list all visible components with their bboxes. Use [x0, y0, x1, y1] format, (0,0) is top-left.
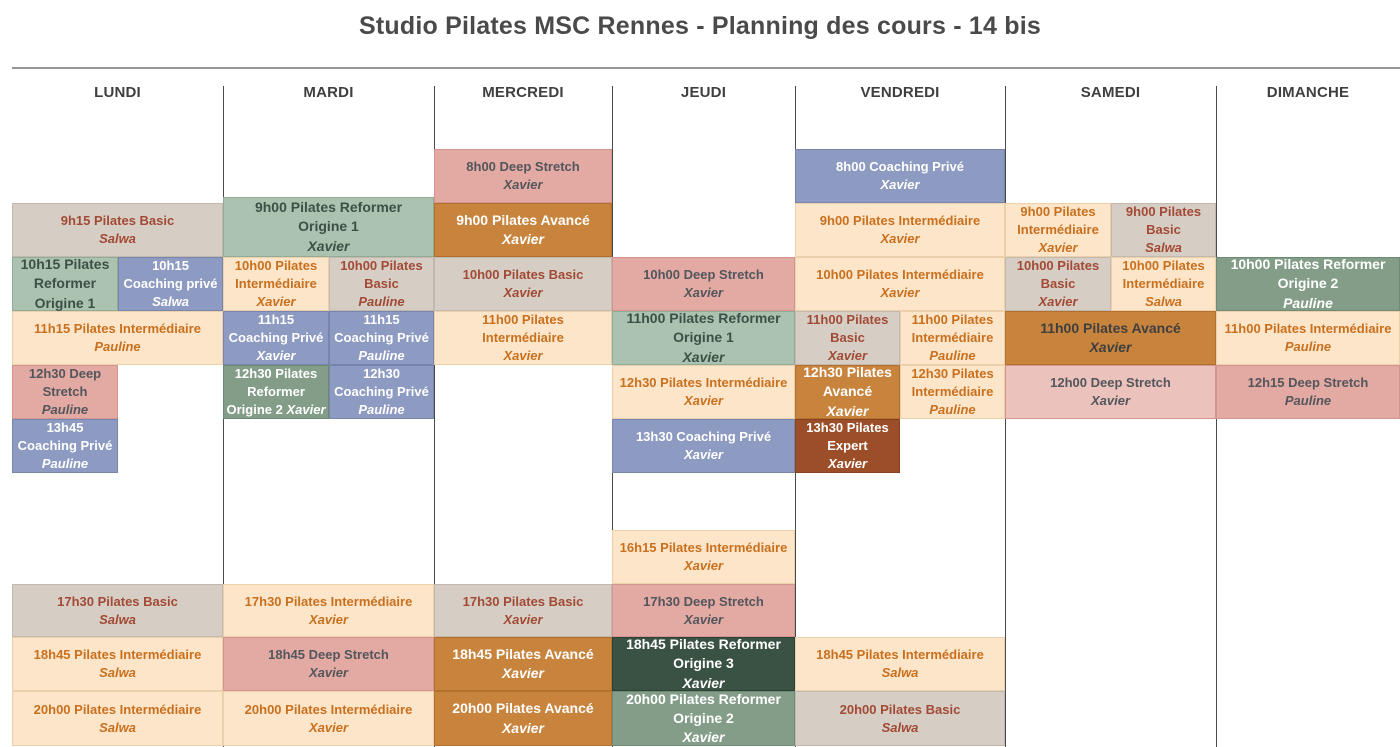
event-title-line: Stretch — [43, 383, 88, 401]
event-instructor: Salwa — [99, 665, 136, 680]
event-block: 10h00 Pilates IntermédiaireXavier — [795, 257, 1005, 311]
event-instructor-line: Xavier — [880, 284, 919, 302]
event-instructor-line: Xavier — [309, 664, 348, 682]
event-instructor-line: Pauline — [94, 338, 140, 356]
event-instructor: Xavier — [682, 675, 724, 691]
event-instructor: Xavier — [880, 285, 919, 300]
event-title-line: 9h15 Pilates Basic — [61, 212, 174, 230]
day-header-mardi: MARDI — [223, 84, 434, 104]
event-instructor-line: Xavier — [503, 284, 542, 302]
event-title-line: 10h00 Pilates Reformer — [1231, 255, 1386, 274]
event-instructor-line: Xavier — [256, 347, 295, 365]
event-block: 11h00 PilatesBasicXavier — [795, 311, 900, 365]
event-instructor-line: Xavier — [1038, 239, 1077, 257]
event-block: 18h45 Pilates ReformerOrigine 3Xavier — [612, 637, 795, 691]
event-block: 9h00 Pilates ReformerOrigine 1Xavier — [223, 197, 434, 257]
event-title-line: 11h00 Pilates Reformer — [626, 309, 780, 328]
event-instructor: Xavier — [684, 447, 723, 462]
event-title-line: Origine 1 — [673, 328, 734, 347]
event-title-line: 9h00 Pilates Avancé — [456, 211, 590, 230]
event-title-line: 17h30 Pilates Intermédiaire — [245, 593, 413, 611]
event-title-line: 13h30 Pilates — [806, 419, 888, 437]
event-instructor-line: Pauline — [929, 401, 975, 419]
event-block: 11h15 Pilates IntermédiairePauline — [12, 311, 223, 365]
event-block: 10h15Coaching privéSalwa — [118, 257, 223, 311]
event-title-line: 11h00 Pilates — [807, 311, 889, 329]
event-block: 20h00 Pilates IntermédiaireSalwa — [12, 691, 223, 746]
event-title-line: Origine 2 — [1278, 274, 1339, 293]
event-block: 12h00 Deep StretchXavier — [1005, 365, 1216, 419]
event-block: 18h45 Pilates IntermédiaireSalwa — [795, 637, 1005, 691]
event-title-line: 18h45 Deep Stretch — [268, 646, 389, 664]
event-instructor: Xavier — [880, 177, 919, 192]
event-title-line: 12h30 Pilates — [803, 363, 892, 382]
event-instructor-line: Xavier — [502, 719, 544, 738]
event-title-line: Coaching Privé — [334, 383, 429, 401]
event-block: 18h45 Pilates IntermédiaireSalwa — [12, 637, 223, 691]
event-block: 12h30 PilatesAvancéXavier — [795, 365, 900, 419]
event-title-line: 20h00 Pilates Avancé — [452, 699, 593, 718]
event-block: 13h45Coaching PrivéPauline — [12, 419, 118, 473]
event-instructor: Xavier — [309, 612, 348, 627]
event-block: 13h30 PilatesExpertXavier — [795, 419, 900, 473]
event-title-line: 18h45 Pilates Intermédiaire — [34, 646, 202, 664]
event-title-line: 9h00 Pilates — [1126, 203, 1201, 221]
event-title-line: 10h00 Pilates — [340, 257, 422, 275]
event-title-line: Intermédiaire — [912, 329, 994, 347]
event-instructor: Xavier — [309, 665, 348, 680]
event-title-line: 11h15 — [258, 311, 294, 329]
event-title-line: Origine 2 — [673, 709, 734, 728]
event-instructor: Pauline — [358, 402, 404, 417]
event-title-line: 8h00 Coaching Privé — [836, 158, 964, 176]
event-block: 9h00 Pilates IntermédiaireXavier — [795, 203, 1005, 257]
event-block: 17h30 Pilates BasicSalwa — [12, 584, 223, 637]
event-title-line: 20h00 Pilates Basic — [840, 701, 961, 719]
event-title-line: Coaching Privé — [229, 329, 324, 347]
event-instructor: Pauline — [358, 294, 404, 309]
event-instructor-line: Xavier — [309, 719, 348, 737]
event-title-line: Origine 1 — [298, 217, 359, 236]
event-instructor: Xavier — [503, 285, 542, 300]
event-instructor-line: Xavier — [309, 611, 348, 629]
event-instructor-line: Pauline — [1285, 392, 1331, 410]
event-title-line: 11h00 Pilates Intermédiaire — [1225, 320, 1392, 338]
event-instructor: Salwa — [882, 720, 919, 735]
event-block: 10h15 PilatesReformerOrigine 1 — [12, 257, 118, 311]
event-title-line: Intermédiaire — [235, 275, 317, 293]
event-block: 10h00 Pilates BasicXavier — [434, 257, 612, 311]
event-instructor: Xavier — [684, 393, 723, 408]
event-block: 10h00 PilatesBasicPauline — [329, 257, 434, 311]
event-instructor: Xavier — [503, 612, 542, 627]
event-title-line: 11h00 Pilates — [912, 311, 994, 329]
event-title-line: 16h15 Pilates Intermédiaire — [620, 539, 788, 557]
event-instructor: Pauline — [1285, 393, 1331, 408]
event-instructor: Pauline — [929, 402, 975, 417]
event-title-line: 9h00 Pilates Intermédiaire — [820, 212, 980, 230]
page-title: Studio Pilates MSC Rennes - Planning des… — [0, 12, 1400, 41]
event-instructor-line: Pauline — [358, 293, 404, 311]
event-instructor: Xavier — [256, 348, 295, 363]
event-instructor: Xavier — [684, 558, 723, 573]
event-instructor: Salwa — [882, 665, 919, 680]
event-block: 11h00 Pilates ReformerOrigine 1Xavier — [612, 311, 795, 365]
event-title-line: 20h00 Pilates Intermédiaire — [34, 701, 202, 719]
event-title-line: 17h30 Pilates Basic — [463, 593, 584, 611]
event-title-line: 13h30 Coaching Privé — [636, 428, 771, 446]
event-block: 10h00 Deep StretchXavier — [612, 257, 795, 311]
event-instructor-line: Xavier — [684, 557, 723, 575]
event-block: 12h30 PilatesIntermédiairePauline — [900, 365, 1005, 419]
event-block: 10h00 PilatesIntermédiaireXavier — [223, 257, 329, 311]
event-block: 20h00 Pilates AvancéXavier — [434, 691, 612, 746]
event-block: 8h00 Coaching PrivéXavier — [795, 149, 1005, 203]
event-instructor-line: Xavier — [503, 176, 542, 194]
event-instructor-line: Xavier — [503, 611, 542, 629]
event-block: 11h15Coaching PrivéXavier — [223, 311, 329, 365]
event-title-line: 10h15 — [152, 257, 189, 275]
event-title-line: 17h30 Pilates Basic — [57, 593, 178, 611]
event-instructor: Xavier — [503, 177, 542, 192]
event-instructor-line: Salwa — [99, 611, 136, 629]
event-block: 11h00 Pilates IntermédiairePauline — [1216, 311, 1400, 365]
event-block: 9h15 Pilates BasicSalwa — [12, 203, 223, 257]
event-block: 20h00 Pilates BasicSalwa — [795, 691, 1005, 746]
event-instructor: Xavier — [684, 612, 723, 627]
event-block: 12h15 Deep StretchPauline — [1216, 365, 1400, 419]
event-block: 17h30 Deep StretchXavier — [612, 584, 795, 637]
event-title-line: 10h00 Pilates — [1122, 257, 1204, 275]
event-instructor: Xavier — [682, 729, 724, 745]
event-instructor-line: Pauline — [42, 401, 88, 419]
event-instructor: Xavier — [828, 456, 867, 471]
event-title-line: 12h30 Pilates — [911, 365, 993, 383]
event-title-line: Intermédiaire — [1123, 275, 1205, 293]
day-header-lundi: LUNDI — [12, 84, 223, 104]
event-instructor: Xavier — [682, 349, 724, 365]
event-title-line: 10h15 Pilates — [21, 255, 110, 274]
event-instructor: Pauline — [42, 456, 88, 471]
event-instructor: Xavier — [309, 720, 348, 735]
event-block: 12h30Coaching PrivéPauline — [329, 365, 434, 419]
event-instructor-line: Salwa — [882, 719, 919, 737]
event-title-line: 13h45 — [47, 419, 84, 437]
event-instructor-line: Pauline — [358, 347, 404, 365]
event-instructor: Xavier — [502, 720, 544, 736]
event-title-line: 11h00 Pilates Avancé — [1040, 319, 1181, 338]
event-instructor-line: Xavier — [880, 230, 919, 248]
event-instructor-line: Xavier — [684, 611, 723, 629]
event-title-line: Basic — [830, 329, 865, 347]
event-title-line: 20h00 Pilates Intermédiaire — [245, 701, 413, 719]
day-header-jeudi: JEUDI — [612, 84, 795, 104]
event-title-line: 17h30 Deep Stretch — [643, 593, 764, 611]
event-instructor: Salwa — [99, 720, 136, 735]
event-title-line: Basic — [364, 275, 399, 293]
event-instructor-line: Pauline — [1285, 338, 1331, 356]
day-header-samedi: SAMEDI — [1005, 84, 1216, 104]
event-instructor-line: Xavier — [684, 284, 723, 302]
event-instructor-line: Xavier — [502, 230, 544, 249]
event-instructor: Xavier — [502, 231, 544, 247]
event-block: 11h15Coaching PrivéPauline — [329, 311, 434, 365]
event-block: 9h00 PilatesBasicSalwa — [1111, 203, 1216, 257]
event-instructor-line: Salwa — [1145, 239, 1182, 257]
event-instructor-line: Pauline — [42, 455, 88, 473]
event-block: 17h30 Pilates BasicXavier — [434, 584, 612, 637]
event-title-line: 11h00 Pilates — [482, 311, 564, 329]
event-block: 10h00 PilatesIntermédiaireSalwa — [1111, 257, 1216, 311]
event-title-line: 9h00 Pilates Reformer — [255, 198, 402, 217]
event-title-line: 10h00 Deep Stretch — [643, 266, 764, 284]
event-instructor: Pauline — [1285, 339, 1331, 354]
event-block: 8h00 Deep StretchXavier — [434, 149, 612, 203]
event-instructor: Xavier — [880, 231, 919, 246]
event-title-line: 18h45 Pilates Intermédiaire — [816, 646, 984, 664]
title-divider — [12, 67, 1400, 69]
event-instructor-line: Xavier — [1089, 338, 1131, 357]
event-block: 17h30 Pilates IntermédiaireXavier — [223, 584, 434, 637]
event-block: 16h15 Pilates IntermédiaireXavier — [612, 530, 795, 584]
event-title-line: Reformer — [34, 274, 96, 293]
event-instructor-line: Xavier — [256, 293, 295, 311]
event-instructor: Salwa — [99, 231, 136, 246]
event-instructor-line: Xavier — [1091, 392, 1130, 410]
event-title-line: Expert — [827, 437, 867, 455]
event-instructor: Pauline — [358, 348, 404, 363]
event-title-line: 12h30 Pilates Intermédiaire — [620, 374, 788, 392]
event-title-line: Intermédiaire — [912, 383, 994, 401]
event-block: 12h30 DeepStretchPauline — [12, 365, 118, 419]
event-block: 12h30 PilatesReformerOrigine 2 Xavier — [223, 365, 329, 419]
event-instructor: Xavier — [286, 402, 325, 417]
day-header-mercredi: MERCREDI — [434, 84, 612, 104]
event-title-line: 8h00 Deep Stretch — [466, 158, 579, 176]
event-title-line: 10h00 Pilates — [1017, 257, 1099, 275]
event-title-line: Basic — [1041, 275, 1076, 293]
event-instructor-line: Xavier — [828, 455, 867, 473]
event-title-line: 11h15 — [363, 311, 399, 329]
event-title-line: Coaching privé — [124, 275, 218, 293]
event-block: 12h30 Pilates IntermédiaireXavier — [612, 365, 795, 419]
event-instructor-line: Salwa — [882, 664, 919, 682]
event-title-line: 12h00 Deep Stretch — [1050, 374, 1171, 392]
event-title-line: 12h15 Deep Stretch — [1248, 374, 1369, 392]
event-block: 10h00 PilatesBasicXavier — [1005, 257, 1111, 311]
event-instructor-line: Salwa — [99, 719, 136, 737]
event-title-line: Avancé — [823, 382, 872, 401]
event-title-line: 10h00 Pilates — [235, 257, 317, 275]
event-title-line: Reformer — [247, 383, 305, 401]
event-block: 20h00 Pilates IntermédiaireXavier — [223, 691, 434, 746]
event-instructor-line: Xavier — [880, 176, 919, 194]
event-block: 11h00 PilatesIntermédiaireXavier — [434, 311, 612, 365]
event-instructor: Xavier — [826, 403, 868, 419]
event-title-line: 18h45 Pilates Avancé — [452, 645, 593, 664]
event-block: 18h45 Pilates AvancéXavier — [434, 637, 612, 691]
event-instructor-line: Pauline — [929, 347, 975, 365]
event-title-line: Origine 2 Xavier — [226, 401, 325, 419]
event-instructor-line: Xavier — [307, 237, 349, 256]
event-title-line: Coaching Privé — [334, 329, 429, 347]
event-instructor: Xavier — [1089, 339, 1131, 355]
event-instructor: Salwa — [1145, 294, 1182, 309]
event-instructor-line: Xavier — [684, 446, 723, 464]
event-block: 13h30 Coaching PrivéXavier — [612, 419, 795, 473]
event-instructor: Pauline — [1283, 295, 1333, 311]
event-instructor: Xavier — [307, 238, 349, 254]
event-instructor: Salwa — [99, 612, 136, 627]
event-title-line: Basic — [1146, 221, 1181, 239]
event-title-line: 12h30 — [363, 365, 400, 383]
event-instructor: Xavier — [684, 285, 723, 300]
event-block: 10h00 Pilates ReformerOrigine 2Pauline — [1216, 257, 1400, 311]
event-title-line: 12h30 Pilates — [235, 365, 317, 383]
event-instructor: Pauline — [94, 339, 140, 354]
event-instructor-line: Xavier — [503, 347, 542, 365]
event-title-line: Coaching Privé — [18, 437, 113, 455]
event-instructor-line: Salwa — [1145, 293, 1182, 311]
event-title-line: 20h00 Pilates Reformer — [626, 690, 781, 709]
event-block: 9h00 Pilates AvancéXavier — [434, 203, 612, 257]
planning-page: Studio Pilates MSC Rennes - Planning des… — [0, 0, 1400, 747]
day-header-vendredi: VENDREDI — [795, 84, 1005, 104]
day-header-dimanche: DIMANCHE — [1216, 84, 1400, 104]
event-title-line: 10h00 Pilates Intermédiaire — [816, 266, 984, 284]
event-block: 11h00 Pilates AvancéXavier — [1005, 311, 1216, 365]
event-instructor: Salwa — [1145, 240, 1182, 255]
event-title-line: 11h15 Pilates Intermédiaire — [34, 320, 201, 338]
event-instructor-line: Xavier — [502, 664, 544, 683]
event-title-line: Intermédiaire — [1017, 221, 1099, 239]
event-instructor-line: Salwa — [99, 230, 136, 248]
event-instructor-line: Xavier — [1038, 293, 1077, 311]
event-instructor-line: Xavier — [684, 392, 723, 410]
event-instructor: Xavier — [256, 294, 295, 309]
event-instructor: Xavier — [1038, 294, 1077, 309]
event-title-line: Intermédiaire — [482, 329, 564, 347]
event-title-line: 10h00 Pilates Basic — [463, 266, 584, 284]
event-instructor: Salwa — [152, 294, 189, 309]
event-instructor: Xavier — [503, 348, 542, 363]
event-instructor: Xavier — [828, 348, 867, 363]
event-instructor: Pauline — [929, 348, 975, 363]
event-title-line: 9h00 Pilates — [1020, 203, 1095, 221]
event-instructor: Pauline — [42, 402, 88, 417]
event-block: 11h00 PilatesIntermédiairePauline — [900, 311, 1005, 365]
event-instructor: Xavier — [1091, 393, 1130, 408]
event-instructor: Xavier — [1038, 240, 1077, 255]
event-block: 18h45 Deep StretchXavier — [223, 637, 434, 691]
event-instructor-line: Salwa — [152, 293, 189, 311]
event-instructor: Xavier — [502, 665, 544, 681]
event-instructor-line: Xavier — [682, 728, 724, 747]
event-title-line: Origine 3 — [673, 654, 734, 673]
event-title-line: 12h30 Deep — [29, 365, 101, 383]
event-instructor-line: Salwa — [99, 664, 136, 682]
event-instructor-line: Pauline — [358, 401, 404, 419]
event-title-line: 18h45 Pilates Reformer — [626, 635, 781, 654]
event-block: 9h00 PilatesIntermédiaireXavier — [1005, 203, 1111, 257]
event-block: 20h00 Pilates ReformerOrigine 2Xavier — [612, 691, 795, 746]
